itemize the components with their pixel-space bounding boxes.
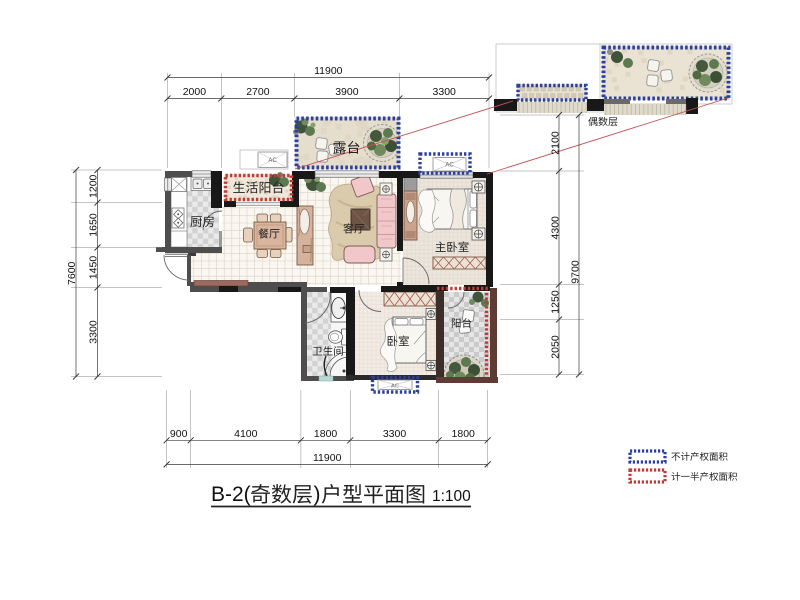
svg-text:1250: 1250 (550, 290, 562, 314)
svg-text:11900: 11900 (313, 452, 342, 464)
svg-text:AC: AC (445, 163, 454, 169)
svg-text:7600: 7600 (66, 261, 78, 285)
svg-text:AC: AC (391, 384, 399, 390)
svg-text:3300: 3300 (88, 320, 100, 344)
svg-text:1800: 1800 (314, 428, 338, 440)
svg-text:): ) (314, 483, 321, 506)
svg-text:11900: 11900 (314, 65, 343, 77)
svg-text:3300: 3300 (433, 86, 457, 98)
svg-text:9700: 9700 (570, 260, 582, 284)
svg-text:1800: 1800 (452, 428, 476, 440)
svg-text:2000: 2000 (183, 86, 207, 98)
svg-text:4100: 4100 (234, 428, 258, 440)
svg-text:1200: 1200 (88, 174, 100, 198)
svg-text:1:100: 1:100 (432, 488, 471, 505)
svg-text:2700: 2700 (246, 86, 270, 98)
svg-text:3900: 3900 (335, 86, 359, 98)
svg-text:900: 900 (170, 428, 188, 440)
svg-text:2050: 2050 (550, 335, 562, 359)
svg-text:AC: AC (268, 158, 277, 164)
svg-text:1650: 1650 (88, 213, 100, 237)
svg-text:2100: 2100 (550, 131, 562, 155)
svg-text:B-2(: B-2( (211, 483, 251, 506)
svg-text:4300: 4300 (550, 216, 562, 240)
svg-text:3300: 3300 (383, 428, 407, 440)
svg-text:1450: 1450 (88, 256, 100, 280)
